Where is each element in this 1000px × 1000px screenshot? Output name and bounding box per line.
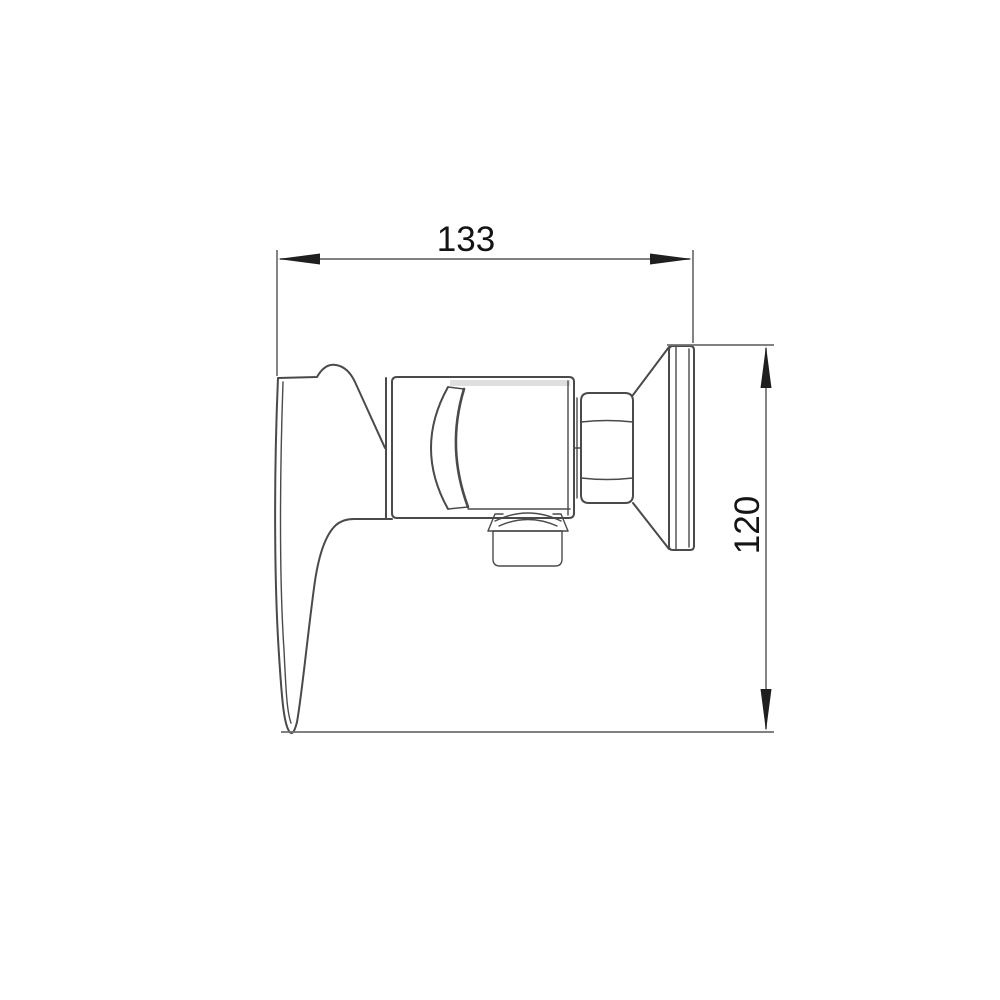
cartridge-bottom-connector <box>448 507 468 509</box>
height-dimension-label: 120 <box>728 496 767 554</box>
nut-upper-facet-line <box>581 421 633 423</box>
escutcheon-plate-outline <box>669 346 694 550</box>
technical-drawing-canvas: 133 120 <box>0 0 1000 1000</box>
height-dimension: 120 <box>281 345 774 732</box>
body-outline <box>392 377 574 518</box>
outlet-collar-left-edge <box>488 514 503 531</box>
cone-bottom-slant <box>633 503 669 549</box>
handle-top-contour <box>278 365 385 448</box>
nut-lower-facet-line <box>581 478 633 480</box>
technical-drawing-page: 133 120 <box>0 0 1000 1000</box>
shower-mixer-drawing <box>275 346 694 733</box>
width-dimension-label: 133 <box>437 220 495 259</box>
valve-body <box>392 377 581 518</box>
bottom-outlet <box>488 513 568 566</box>
handle-silhouette <box>275 378 392 733</box>
cartridge-top-connector <box>448 387 464 389</box>
cartridge-outer-arc <box>431 387 448 509</box>
body-top-shading <box>450 380 570 386</box>
hex-nut <box>577 393 633 503</box>
width-arrow-right <box>650 254 692 265</box>
height-arrow-down <box>761 689 772 731</box>
nut-outline <box>581 393 633 503</box>
width-dimension: 133 <box>277 220 693 376</box>
width-arrow-left <box>278 254 320 265</box>
cartridge-inner-arc <box>456 389 468 507</box>
height-dimension-label-group: 120 <box>728 496 767 554</box>
outlet-thread-block <box>493 531 562 566</box>
wall-escutcheon <box>633 346 694 550</box>
outlet-collar-dome-inner <box>499 520 557 527</box>
handle-left-edge-inner-line <box>281 382 292 723</box>
height-arrow-up <box>761 346 772 388</box>
cone-top-slant <box>633 347 669 395</box>
lever-handle <box>275 365 392 733</box>
outlet-collar-right-edge <box>553 514 568 531</box>
